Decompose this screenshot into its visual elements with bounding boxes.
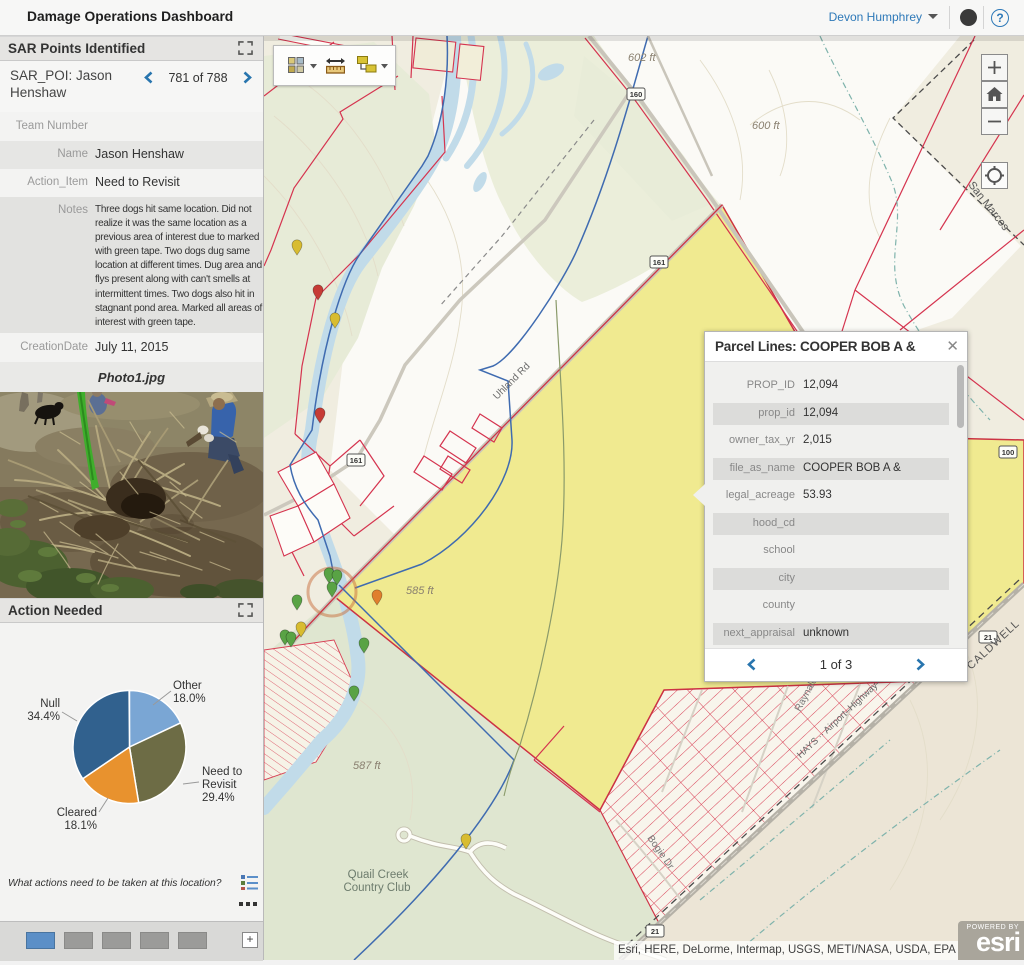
svg-text:587 ft: 587 ft — [353, 760, 381, 772]
svg-text:Revisit: Revisit — [202, 779, 237, 791]
svg-text:160: 160 — [630, 90, 643, 99]
svg-text:Cleared: Cleared — [57, 807, 97, 819]
svg-text:Country Club: Country Club — [343, 882, 410, 894]
svg-text:161: 161 — [350, 456, 363, 465]
svg-text:34.4%: 34.4% — [27, 711, 60, 723]
svg-text:29.4%: 29.4% — [202, 792, 235, 804]
svg-text:585 ft: 585 ft — [406, 585, 434, 597]
svg-text:602 ft: 602 ft — [628, 52, 656, 64]
svg-text:Quail Creek: Quail Creek — [348, 869, 409, 881]
svg-text:161: 161 — [653, 258, 666, 267]
svg-text:21: 21 — [651, 927, 659, 936]
svg-text:18.1%: 18.1% — [64, 820, 97, 832]
svg-text:Need to: Need to — [202, 766, 242, 778]
svg-text:Null: Null — [40, 698, 60, 710]
svg-text:100: 100 — [1002, 448, 1015, 457]
svg-text:Other: Other — [173, 680, 202, 692]
svg-text:600 ft: 600 ft — [752, 120, 780, 132]
svg-text:18.0%: 18.0% — [173, 693, 206, 705]
